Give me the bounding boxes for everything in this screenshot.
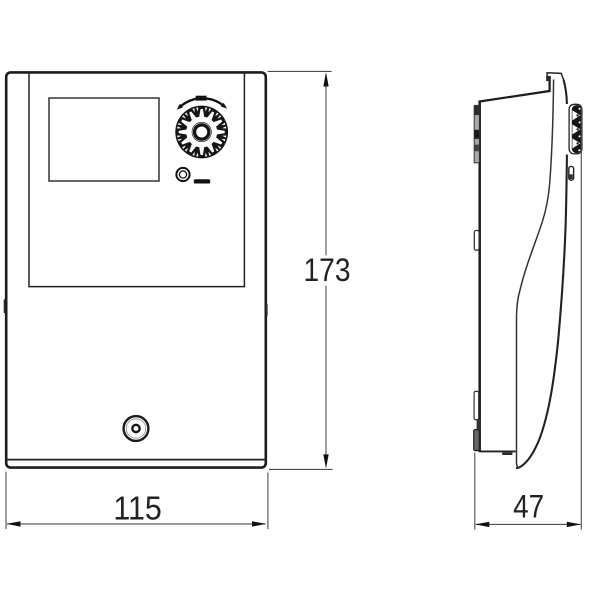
svg-text:115: 115 <box>113 491 162 528</box>
svg-text:47: 47 <box>513 488 544 524</box>
svg-text:173: 173 <box>304 252 351 288</box>
